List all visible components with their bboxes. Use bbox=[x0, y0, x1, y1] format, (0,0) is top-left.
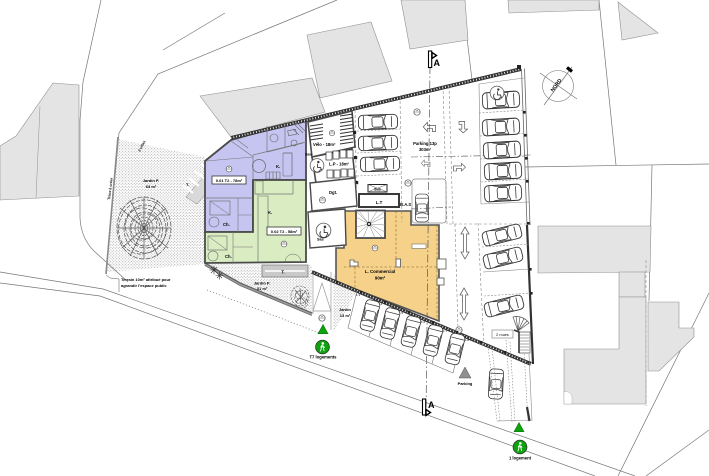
svg-text:Ch.: Ch. bbox=[223, 222, 230, 227]
svg-text:L. Commercial: L. Commercial bbox=[365, 269, 395, 274]
svg-text:T.: T. bbox=[186, 182, 189, 187]
svg-text:1.6: 1.6 bbox=[421, 320, 426, 324]
svg-text:2 roues: 2 roues bbox=[496, 333, 509, 337]
svg-text:T.: T. bbox=[281, 270, 284, 275]
svg-text:Sas: Sas bbox=[317, 238, 324, 242]
svg-text:1.8: 1.8 bbox=[465, 338, 470, 342]
svg-text:K.: K. bbox=[268, 210, 272, 215]
svg-text:1.7: 1.7 bbox=[443, 329, 448, 333]
svg-text:0.01 T2 - 78m²: 0.01 T2 - 78m² bbox=[216, 178, 243, 183]
svg-text:agrandir l'espace public: agrandir l'espace public bbox=[121, 283, 167, 288]
svg-text:A: A bbox=[428, 400, 435, 410]
svg-text:Parking 13p: Parking 13p bbox=[413, 141, 437, 146]
svg-text:Sas: Sas bbox=[374, 187, 381, 191]
svg-text:A: A bbox=[434, 58, 441, 68]
svg-text:1.3: 1.3 bbox=[356, 293, 361, 297]
svg-text:31 m²: 31 m² bbox=[257, 286, 268, 291]
svg-text:Dgt.: Dgt. bbox=[329, 190, 337, 195]
svg-text:Jardin P.: Jardin P. bbox=[143, 178, 159, 183]
svg-text:0.02 T2 - 58m²: 0.02 T2 - 58m² bbox=[271, 229, 298, 234]
svg-text:1 logement: 1 logement bbox=[509, 456, 532, 461]
svg-text:303m²: 303m² bbox=[419, 147, 432, 152]
svg-text:Sas: Sas bbox=[305, 153, 312, 157]
svg-text:K.: K. bbox=[276, 164, 280, 169]
svg-text:Vélo - 18m²: Vélo - 18m² bbox=[313, 142, 336, 147]
svg-text:13 m²: 13 m² bbox=[340, 313, 351, 318]
svg-text:Ch.: Ch. bbox=[225, 254, 232, 259]
svg-text:Jardin P.: Jardin P. bbox=[254, 281, 270, 286]
svg-text:63 m²: 63 m² bbox=[146, 184, 157, 189]
svg-text:Terrain 10m² attribué pour: Terrain 10m² attribué pour bbox=[121, 277, 171, 282]
svg-text:L.P - 18m²: L.P - 18m² bbox=[329, 162, 350, 167]
svg-text:T7 logements: T7 logements bbox=[310, 355, 338, 360]
svg-text:90m²: 90m² bbox=[375, 276, 386, 281]
svg-text:B.A.S: B.A.S bbox=[400, 202, 411, 207]
svg-text:L.T: L.T bbox=[376, 200, 383, 205]
svg-text:Jardin: Jardin bbox=[339, 307, 352, 312]
svg-text:Parking: Parking bbox=[458, 381, 473, 386]
